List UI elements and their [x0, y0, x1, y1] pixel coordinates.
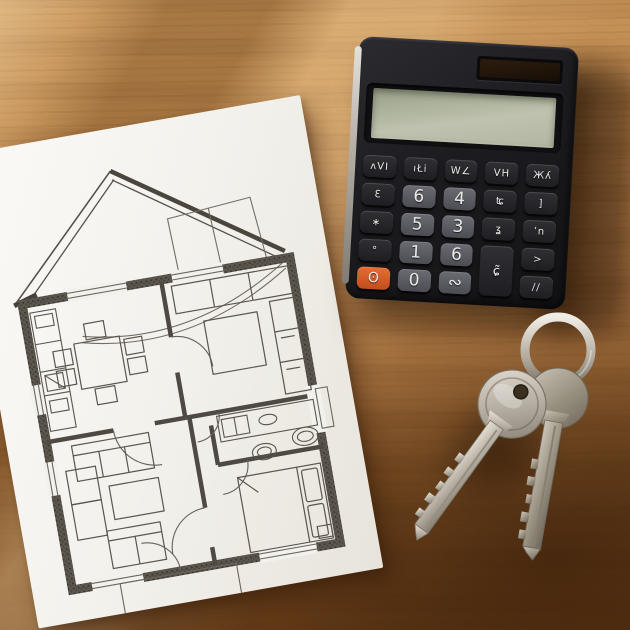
lcd-screen	[371, 88, 557, 148]
calc-key-r4c3: 6	[439, 243, 473, 267]
exterior-walls	[22, 257, 340, 590]
calculator-keypad: ᴧVI ıŁi W∠ VH Жʎ Ɛ 6 4 ʨ ] ∗ 5 3 ʓ ʼn ° …	[356, 154, 559, 299]
solar-panel	[476, 56, 563, 85]
calc-key-r3c3: 3	[441, 215, 475, 239]
calc-key-r1c1: ᴧVI	[363, 154, 397, 178]
interior-walls	[22, 259, 340, 590]
calc-key-r1c2: ıŁi	[403, 157, 437, 181]
calc-key-r1c5: Жʎ	[526, 164, 560, 188]
calc-key-r2c5: ]	[524, 192, 558, 216]
calculator: ᴧVI ıŁi W∠ VH Жʎ Ɛ 6 4 ʨ ] ∗ 5 3 ʓ ʼn ° …	[345, 36, 579, 310]
photo-scene: ᴧVI ıŁi W∠ VH Жʎ Ɛ 6 4 ʨ ] ∗ 5 3 ʓ ʼn ° …	[0, 0, 630, 630]
calc-key-r2c2: 6	[402, 185, 436, 209]
calc-key-orange: ʘ	[356, 266, 390, 290]
bedroom-furniture	[237, 463, 333, 552]
calc-key-r5c2: 0	[397, 269, 431, 293]
calc-key-tall: ɕ̃	[479, 245, 515, 297]
calc-key-r3c1: ∗	[360, 210, 394, 234]
calc-key-r4c5: >	[521, 247, 555, 271]
calc-key-r1c3: W∠	[444, 159, 478, 183]
calc-key-r1c4: VH	[485, 161, 519, 185]
top-right-room-furniture	[171, 265, 311, 410]
calc-key-r2c3: 4	[443, 187, 477, 211]
calc-key-r4c1: °	[358, 238, 392, 262]
calc-key-r2c1: Ɛ	[361, 182, 395, 206]
calc-key-r5c3: ∾	[438, 271, 472, 295]
calc-key-r3c5: ʼn	[522, 220, 556, 244]
calc-key-r5c5: ∕∕	[519, 275, 553, 299]
calculator-display	[364, 83, 564, 154]
calc-key-r3c2: 5	[400, 213, 434, 237]
calc-key-r3c4: ʓ	[482, 217, 516, 241]
living-room-furniture	[62, 432, 173, 574]
keys-with-ring	[408, 312, 618, 567]
calc-key-r4c2: 1	[399, 241, 433, 265]
calc-key-r2c4: ʨ	[483, 189, 517, 213]
